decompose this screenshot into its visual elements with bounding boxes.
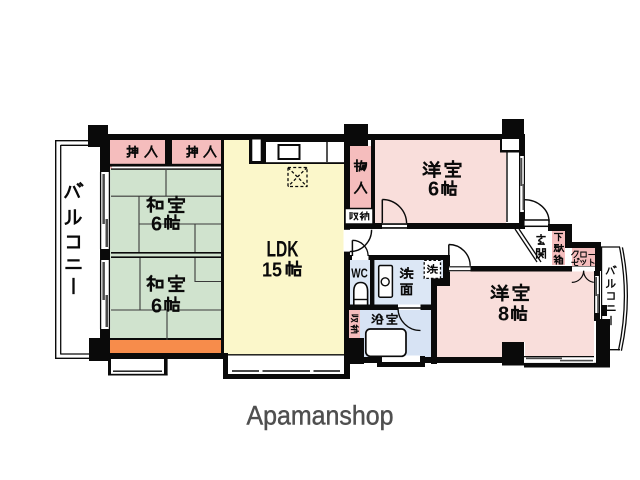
- svg-text:15: 15: [262, 259, 282, 282]
- svg-text:6: 6: [151, 214, 162, 236]
- svg-text:6: 6: [151, 296, 162, 318]
- svg-text:6: 6: [428, 179, 439, 201]
- svg-text:WC: WC: [351, 266, 368, 281]
- svg-text:8: 8: [498, 304, 509, 326]
- svg-text:Apamanshop: Apamanshop: [247, 401, 394, 431]
